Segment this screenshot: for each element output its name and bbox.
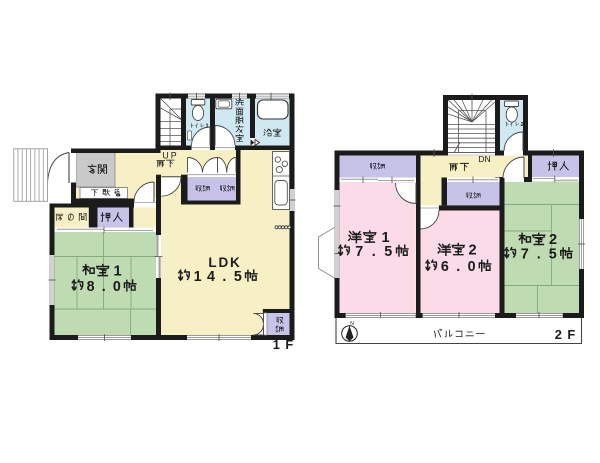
svg-text:8: 8: [87, 279, 95, 295]
svg-text:1: 1: [113, 263, 121, 279]
svg-text:1: 1: [205, 124, 208, 130]
svg-text:.: .: [102, 279, 106, 295]
svg-text:7: 7: [355, 244, 363, 260]
svg-text:5: 5: [549, 247, 557, 263]
svg-text:5: 5: [234, 269, 242, 285]
svg-text:1: 1: [194, 269, 202, 285]
svg-text:0: 0: [113, 279, 121, 295]
svg-text:UP: UP: [162, 150, 178, 160]
svg-text:.: .: [456, 259, 460, 275]
svg-text:DN: DN: [478, 154, 490, 164]
svg-text:N: N: [350, 321, 354, 327]
svg-text:2: 2: [520, 122, 523, 128]
svg-text:4: 4: [207, 269, 215, 285]
svg-text:7: 7: [521, 247, 529, 263]
svg-text:2 F: 2 F: [555, 327, 577, 342]
svg-text:.: .: [222, 269, 226, 285]
svg-text:.: .: [372, 244, 376, 260]
svg-text:0: 0: [468, 259, 476, 275]
svg-text:.: .: [537, 247, 541, 263]
svg-text:2: 2: [468, 242, 476, 258]
svg-text:5: 5: [384, 244, 392, 260]
svg-text:6: 6: [441, 259, 449, 275]
svg-text:LDK: LDK: [208, 255, 241, 270]
svg-text:1 F: 1 F: [273, 337, 295, 352]
